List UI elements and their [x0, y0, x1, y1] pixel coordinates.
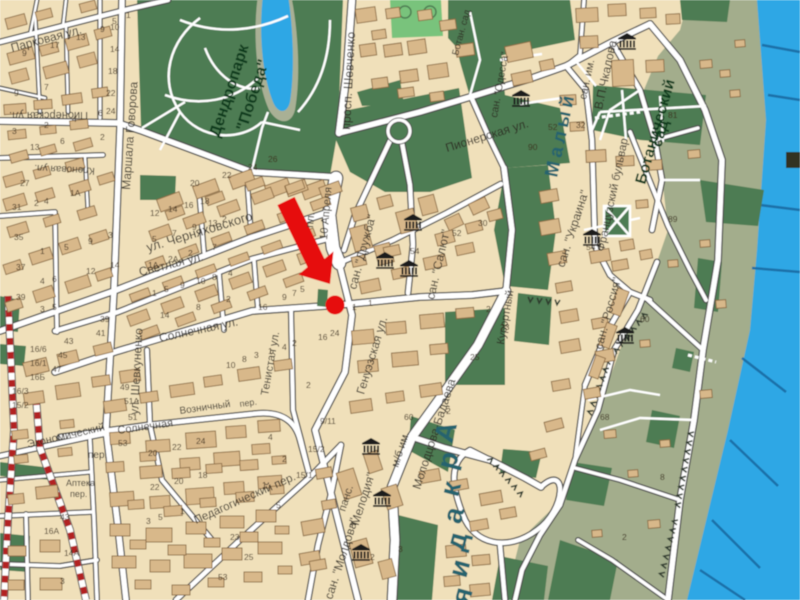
svg-text:5: 5 [52, 302, 57, 312]
svg-text:20: 20 [148, 448, 158, 458]
svg-text:47: 47 [52, 364, 62, 374]
svg-text:18: 18 [108, 66, 118, 76]
svg-text:54: 54 [586, 242, 596, 252]
svg-text:9: 9 [282, 292, 287, 302]
svg-text:45: 45 [58, 350, 68, 360]
svg-text:43: 43 [64, 336, 74, 346]
svg-text:24: 24 [330, 328, 340, 338]
svg-text:12: 12 [150, 208, 160, 218]
svg-text:81: 81 [668, 110, 678, 120]
svg-text:5: 5 [276, 500, 281, 510]
svg-text:7: 7 [212, 242, 217, 252]
svg-text:4: 4 [228, 268, 233, 278]
svg-text:51: 51 [128, 412, 138, 422]
svg-text:52: 52 [452, 228, 462, 238]
svg-text:5: 5 [152, 234, 157, 244]
svg-text:23: 23 [230, 532, 240, 542]
svg-text:2А: 2А [168, 254, 179, 264]
svg-text:9: 9 [100, 24, 105, 34]
svg-text:18: 18 [198, 470, 208, 480]
svg-text:9: 9 [180, 280, 185, 290]
svg-text:31: 31 [12, 202, 22, 212]
svg-text:15/1: 15/1 [296, 470, 313, 480]
svg-text:6: 6 [52, 274, 57, 284]
svg-text:1: 1 [268, 346, 273, 356]
svg-text:16А: 16А [44, 526, 59, 536]
svg-text:2: 2 [292, 338, 297, 348]
svg-text:13: 13 [76, 32, 86, 42]
svg-text:пер.: пер. [88, 450, 107, 461]
svg-text:9: 9 [88, 236, 93, 246]
svg-text:6: 6 [98, 108, 103, 118]
svg-text:60: 60 [404, 412, 414, 422]
svg-text:43: 43 [60, 512, 70, 522]
svg-text:1: 1 [352, 302, 357, 312]
svg-text:53: 53 [218, 572, 228, 582]
svg-text:2: 2 [370, 552, 375, 562]
svg-text:2: 2 [446, 406, 451, 416]
svg-text:1: 1 [40, 246, 45, 256]
svg-text:16: 16 [318, 332, 328, 342]
svg-text:12: 12 [86, 266, 96, 276]
svg-text:7: 7 [172, 228, 177, 238]
svg-text:Аптека: Аптека [66, 478, 95, 488]
svg-text:2: 2 [188, 248, 193, 258]
svg-text:3: 3 [108, 230, 113, 240]
svg-text:10: 10 [226, 360, 236, 370]
svg-text:24: 24 [196, 436, 206, 446]
svg-text:пл.: пл. [304, 212, 317, 228]
svg-text:30: 30 [478, 218, 488, 228]
svg-text:17: 17 [50, 40, 60, 50]
svg-text:10: 10 [110, 22, 120, 32]
svg-text:2: 2 [100, 132, 105, 142]
svg-text:18: 18 [200, 196, 210, 206]
svg-text:23: 23 [500, 322, 510, 332]
svg-text:1: 1 [152, 288, 157, 298]
svg-text:24: 24 [106, 106, 116, 116]
svg-text:7: 7 [44, 82, 49, 92]
svg-text:52: 52 [548, 122, 558, 132]
svg-text:10: 10 [196, 276, 206, 286]
svg-text:60: 60 [640, 314, 650, 324]
svg-text:2: 2 [622, 532, 627, 542]
svg-text:2: 2 [222, 214, 227, 224]
svg-text:2: 2 [44, 120, 49, 130]
svg-text:15/2: 15/2 [12, 400, 29, 410]
svg-text:3: 3 [398, 544, 403, 554]
svg-text:1: 1 [126, 10, 131, 20]
svg-text:9: 9 [14, 88, 19, 98]
svg-text:89: 89 [668, 214, 678, 224]
svg-text:14А: 14А [64, 548, 79, 558]
svg-text:39: 39 [100, 314, 110, 324]
svg-text:41: 41 [96, 328, 106, 338]
svg-text:25: 25 [244, 552, 254, 562]
svg-text:8: 8 [196, 302, 201, 312]
svg-text:3: 3 [60, 576, 65, 586]
svg-text:5: 5 [164, 284, 169, 294]
svg-text:32: 32 [576, 120, 586, 130]
svg-text:2: 2 [486, 304, 491, 314]
svg-text:20: 20 [190, 178, 200, 188]
svg-text:16: 16 [184, 200, 194, 210]
svg-text:1: 1 [262, 480, 267, 490]
svg-text:1А: 1А [148, 260, 159, 270]
svg-text:1: 1 [368, 298, 373, 308]
svg-text:26: 26 [268, 154, 278, 164]
svg-text:25: 25 [470, 352, 480, 362]
svg-text:5: 5 [300, 284, 305, 294]
svg-text:22: 22 [150, 482, 160, 492]
svg-text:5: 5 [158, 512, 163, 522]
svg-text:2: 2 [226, 294, 231, 304]
svg-text:15/2: 15/2 [308, 444, 325, 454]
svg-text:9: 9 [192, 222, 197, 232]
svg-text:4: 4 [44, 196, 49, 206]
svg-text:39: 39 [16, 292, 26, 302]
svg-text:14: 14 [110, 260, 120, 270]
svg-text:53: 53 [118, 438, 128, 448]
svg-text:13: 13 [208, 218, 218, 228]
svg-text:90: 90 [528, 142, 538, 152]
svg-text:13: 13 [30, 142, 40, 152]
svg-text:16Б: 16Б [30, 372, 45, 382]
svg-text:8: 8 [212, 272, 217, 282]
svg-text:22: 22 [172, 442, 182, 452]
svg-text:8: 8 [660, 472, 665, 482]
svg-text:16: 16 [258, 302, 268, 312]
svg-text:4: 4 [282, 342, 287, 352]
svg-text:1: 1 [180, 506, 185, 516]
svg-text:2: 2 [34, 198, 39, 208]
svg-text:51А: 51А [124, 396, 139, 406]
svg-text:54: 54 [410, 246, 420, 256]
svg-text:14: 14 [160, 310, 170, 320]
svg-text:пер.: пер. [70, 489, 87, 499]
svg-text:4: 4 [268, 432, 273, 442]
svg-text:22: 22 [106, 88, 116, 98]
svg-text:35: 35 [14, 232, 24, 242]
svg-text:27: 27 [20, 178, 30, 188]
svg-text:14: 14 [168, 204, 178, 214]
svg-text:3: 3 [254, 350, 259, 360]
svg-text:4: 4 [72, 114, 77, 124]
svg-text:3: 3 [40, 304, 45, 314]
svg-text:4: 4 [40, 276, 45, 286]
svg-text:24: 24 [248, 162, 258, 172]
svg-text:2: 2 [306, 380, 311, 390]
svg-text:1А: 1А [70, 188, 81, 198]
svg-text:16/3: 16/3 [12, 386, 29, 396]
svg-text:8: 8 [242, 354, 247, 364]
svg-text:37: 37 [16, 262, 26, 272]
svg-text:9/11: 9/11 [320, 416, 336, 426]
svg-text:3: 3 [12, 126, 17, 136]
svg-text:6: 6 [60, 136, 65, 146]
svg-text:16/6: 16/6 [30, 344, 47, 354]
svg-text:5: 5 [64, 242, 69, 252]
svg-text:9: 9 [22, 48, 27, 58]
svg-text:2: 2 [282, 454, 287, 464]
svg-text:49: 49 [120, 382, 130, 392]
svg-text:3: 3 [146, 516, 151, 526]
svg-text:22: 22 [222, 170, 232, 180]
svg-text:20: 20 [174, 476, 184, 486]
svg-text:7: 7 [292, 288, 297, 298]
svg-text:16/1: 16/1 [30, 358, 47, 368]
svg-text:14: 14 [110, 44, 120, 54]
svg-text:68: 68 [600, 412, 610, 422]
